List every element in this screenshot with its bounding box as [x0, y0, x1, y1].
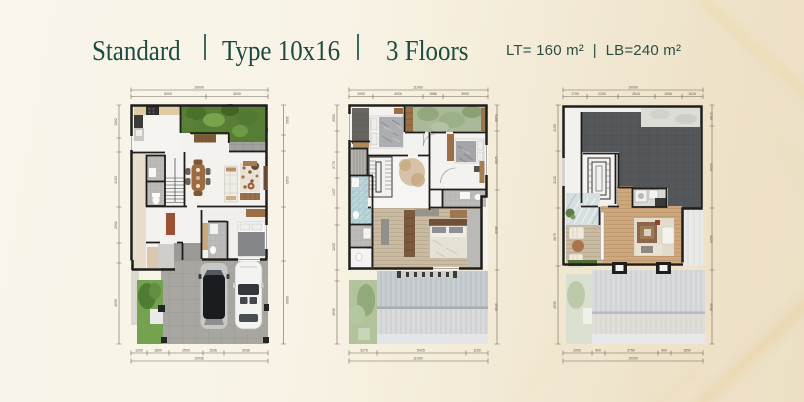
- svg-text:1800: 1800: [154, 349, 162, 353]
- svg-text:1200: 1200: [135, 349, 143, 353]
- svg-text:4000: 4000: [233, 92, 241, 96]
- svg-text:10000: 10000: [194, 86, 204, 90]
- svg-text:10000: 10000: [628, 357, 638, 361]
- svg-text:3650: 3650: [494, 226, 498, 234]
- svg-text:4163: 4163: [114, 176, 118, 184]
- svg-text:3125: 3125: [709, 235, 713, 243]
- svg-text:900: 900: [595, 349, 601, 353]
- svg-text:2775: 2775: [332, 161, 336, 169]
- svg-text:4930: 4930: [553, 301, 557, 309]
- svg-text:4230: 4230: [494, 156, 498, 164]
- svg-text:5000: 5000: [285, 296, 289, 304]
- svg-text:3100: 3100: [494, 114, 498, 122]
- svg-text:2050: 2050: [332, 114, 336, 122]
- svg-text:1536: 1536: [209, 349, 217, 353]
- svg-text:2675: 2675: [553, 233, 557, 241]
- svg-text:4000: 4000: [394, 92, 402, 96]
- svg-text:1900: 1900: [357, 92, 365, 96]
- svg-text:3036: 3036: [242, 349, 250, 353]
- svg-text:4150: 4150: [553, 124, 557, 132]
- svg-text:2643: 2643: [632, 92, 640, 96]
- svg-text:1586: 1586: [429, 92, 437, 96]
- svg-text:3275: 3275: [360, 349, 368, 353]
- svg-text:10036: 10036: [194, 357, 204, 361]
- svg-text:1150: 1150: [473, 349, 481, 353]
- svg-text:5425: 5425: [417, 349, 425, 353]
- svg-text:11000: 11000: [413, 357, 423, 361]
- svg-text:900: 900: [661, 349, 667, 353]
- svg-text:3225: 3225: [332, 243, 336, 251]
- svg-text:2500: 2500: [182, 349, 190, 353]
- svg-text:4930: 4930: [709, 303, 713, 311]
- svg-text:2050: 2050: [573, 349, 581, 353]
- svg-text:1650: 1650: [683, 349, 691, 353]
- svg-text:4930: 4930: [332, 308, 336, 316]
- svg-text:1562: 1562: [285, 116, 289, 124]
- svg-text:1700: 1700: [709, 112, 713, 120]
- svg-text:1437: 1437: [332, 188, 336, 196]
- svg-text:3000: 3000: [461, 92, 469, 96]
- svg-text:3750: 3750: [627, 349, 635, 353]
- svg-text:2200: 2200: [598, 92, 606, 96]
- svg-text:10000: 10000: [628, 86, 638, 90]
- svg-text:1616: 1616: [688, 92, 696, 96]
- svg-text:2562: 2562: [114, 221, 118, 229]
- svg-text:5000: 5000: [164, 92, 172, 96]
- svg-text:3125: 3125: [553, 176, 557, 184]
- svg-text:1906: 1906: [664, 92, 672, 96]
- svg-text:1700: 1700: [571, 92, 579, 96]
- svg-text:11000: 11000: [413, 86, 423, 90]
- svg-text:4150: 4150: [709, 163, 713, 171]
- svg-text:1562: 1562: [114, 118, 118, 126]
- svg-text:4939: 4939: [114, 299, 118, 307]
- svg-text:4930: 4930: [494, 303, 498, 311]
- svg-text:4163: 4163: [285, 176, 289, 184]
